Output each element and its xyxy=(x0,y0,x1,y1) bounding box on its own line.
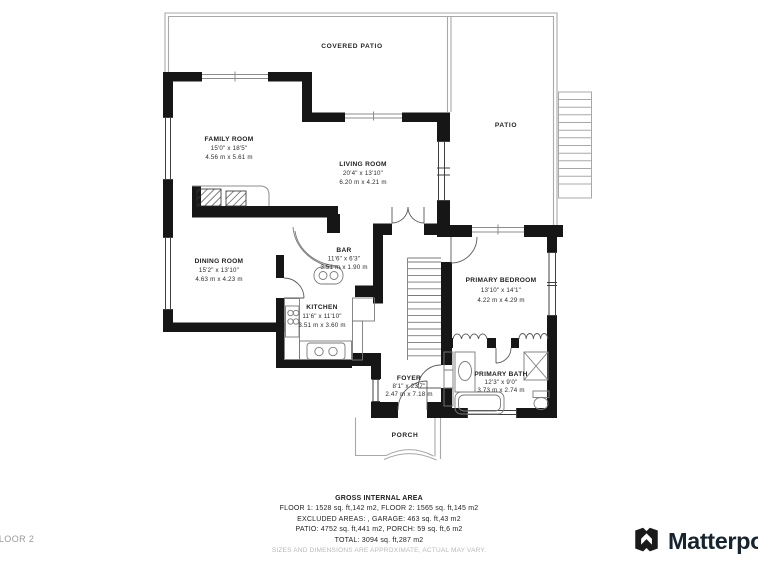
room-name: FAMILY ROOM xyxy=(204,136,253,143)
floorplan-page: { "floorplan": { "floor_label": "FLOOR 2… xyxy=(0,0,758,564)
room-name: LIVING ROOM xyxy=(339,161,387,168)
room-dims-ft: 15'0" x 18'5" xyxy=(211,145,248,152)
room-name: PRIMARY BEDROOM xyxy=(466,277,537,284)
outdoor-stairs xyxy=(559,92,592,198)
room-label-family-room: FAMILY ROOM 15'0" x 18'5" 4.56 m x 5.61 … xyxy=(204,136,253,161)
matterport-logo-text: Matterport xyxy=(668,528,758,555)
room-dims-ft: 11'6" x 6'3" xyxy=(328,256,360,263)
area-line-floors: FLOOR 1: 1528 sq. ft,142 m2, FLOOR 2: 15… xyxy=(0,504,758,514)
room-dims-m: 6.20 m x 4.21 m xyxy=(339,179,386,186)
room-name: PRIMARY BATH xyxy=(474,371,527,378)
toilet-bowl xyxy=(534,398,548,410)
room-dims-ft: 13'10" x 14'1" xyxy=(481,287,521,294)
sink xyxy=(459,362,472,381)
gross-internal-area-title: GROSS INTERNAL AREA xyxy=(0,494,758,504)
room-label-living-room: LIVING ROOM 20'4" x 13'10" 6.20 m x 4.21… xyxy=(339,161,387,186)
room-dims-m: 3.73 m x 2.74 m xyxy=(477,387,524,394)
fireplace xyxy=(192,186,269,206)
interior-stairs xyxy=(408,258,442,360)
room-dims-m: 4.56 m x 5.61 m xyxy=(205,154,252,161)
matterport-branding: Matterport xyxy=(633,524,758,558)
room-name: BAR xyxy=(336,247,351,254)
room-name: KITCHEN xyxy=(306,304,337,311)
room-dims-m: 3.51 m x 1.90 m xyxy=(320,264,367,271)
vanity xyxy=(455,352,475,392)
room-dims-m: 2.47 m x 7.18 m xyxy=(385,391,432,398)
room-dims-ft: 11'6" x 11'10" xyxy=(302,313,341,320)
room-dims-ft: 20'4" x 13'10" xyxy=(343,170,383,177)
room-dims-ft: 8'1" x 23'7" xyxy=(393,383,426,390)
room-dims-ft: 15'2" x 13'10" xyxy=(199,267,239,274)
room-dims-m: 4.63 m x 4.23 m xyxy=(195,276,242,283)
room-dims-m: 4.22 m x 4.29 m xyxy=(477,297,524,304)
covered-patio-label: COVERED PATIO xyxy=(321,43,382,50)
room-label-dining-room: DINING ROOM 15'2" x 13'10" 4.63 m x 4.23… xyxy=(195,258,244,283)
room-dims-ft: 12'3" x 9'0" xyxy=(485,379,518,386)
room-label-foyer: FOYER 8'1" x 23'7" 2.47 m x 7.18 m xyxy=(385,375,432,398)
toilet-tank xyxy=(533,391,549,398)
floorplan-drawing: COVERED PATIO PATIO PORCH FAMILY ROOM 15… xyxy=(0,0,758,564)
room-label-kitchen: KITCHEN 11'6" x 11'10" 3.51 m x 3.60 m xyxy=(298,304,345,329)
room-name: FOYER xyxy=(397,375,421,382)
floor-label: FLOOR 2 xyxy=(0,534,34,544)
closet-bifold-doors xyxy=(453,334,548,340)
room-dims-m: 3.51 m x 3.60 m xyxy=(298,322,345,329)
room-label-primary-bath: PRIMARY BATH 12'3" x 9'0" 3.73 m x 2.74 … xyxy=(474,371,527,394)
matterport-logo-icon xyxy=(633,526,660,558)
room-name: DINING ROOM xyxy=(195,258,244,265)
room-label-primary-bedroom: PRIMARY BEDROOM 13'10" x 14'1" 4.22 m x … xyxy=(466,277,537,304)
room-label-bar: BAR 11'6" x 6'3" 3.51 m x 1.90 m xyxy=(320,247,367,271)
patio-label: PATIO xyxy=(495,122,517,129)
porch-label: PORCH xyxy=(392,432,419,439)
